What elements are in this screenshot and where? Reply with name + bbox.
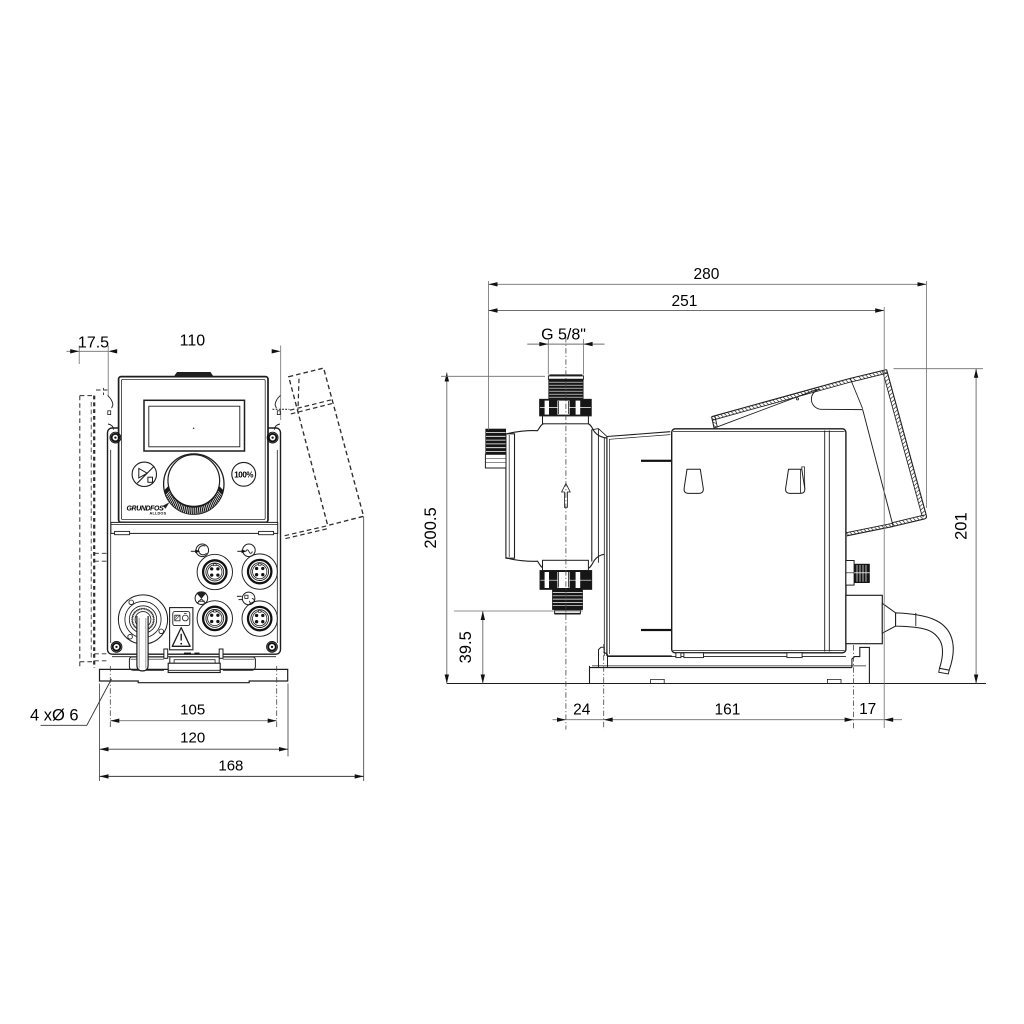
svg-text:105: 105 [180,701,205,718]
svg-text:200.5: 200.5 [422,507,440,548]
svg-text:4 xØ 6: 4 xØ 6 [30,707,79,725]
svg-text:280: 280 [693,266,719,283]
svg-text:168: 168 [218,758,243,775]
svg-text:17: 17 [859,701,876,718]
svg-text:201: 201 [952,512,970,540]
svg-text:ALLDOS: ALLDOS [150,511,167,515]
svg-text:161: 161 [714,702,740,719]
svg-text:251: 251 [671,293,697,310]
svg-text:120: 120 [180,730,205,747]
svg-text:100%: 100% [234,470,253,479]
svg-text:G 5/8": G 5/8" [541,327,586,344]
svg-text:39.5: 39.5 [457,631,475,663]
svg-text:17.5: 17.5 [78,334,109,351]
svg-text:110: 110 [180,333,206,350]
svg-text:24: 24 [573,702,591,719]
